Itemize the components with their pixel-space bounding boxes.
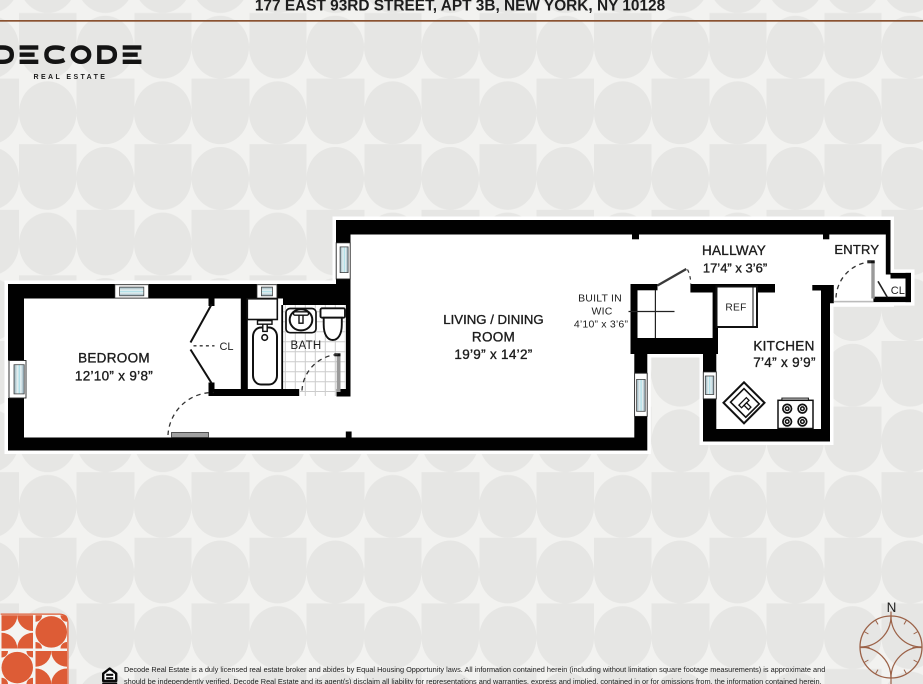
svg-text:CL: CL <box>891 285 905 297</box>
svg-text:HALLWAY: HALLWAY <box>702 243 766 258</box>
svg-text:177 EAST 93RD STREET, APT 3B,: 177 EAST 93RD STREET, APT 3B, NEW YORK, … <box>255 0 666 15</box>
svg-text:ENTRY: ENTRY <box>834 242 879 257</box>
svg-text:WIC: WIC <box>591 306 612 318</box>
svg-text:LIVING / DINING: LIVING / DINING <box>443 312 543 327</box>
svg-text:BEDROOM: BEDROOM <box>78 351 150 366</box>
svg-text:7’4” x 9’9”: 7’4” x 9’9” <box>753 355 816 370</box>
svg-text:Decode Real Estate is a duly l: Decode Real Estate is a duly licensed re… <box>124 665 825 674</box>
svg-text:N: N <box>887 600 897 615</box>
svg-text:CL: CL <box>219 341 233 353</box>
svg-text:REAL ESTATE: REAL ESTATE <box>34 74 108 81</box>
svg-text:should be independently verifi: should be independently verified. Decode… <box>124 677 822 684</box>
svg-text:12’10” x 9’8”: 12’10” x 9’8” <box>75 369 153 384</box>
svg-text:BATH: BATH <box>290 340 321 352</box>
svg-text:19’9” x 14’2”: 19’9” x 14’2” <box>454 347 532 362</box>
svg-text:4’10” x 3’6”: 4’10” x 3’6” <box>574 319 629 331</box>
svg-text:KITCHEN: KITCHEN <box>753 339 814 354</box>
svg-text:BUILT IN: BUILT IN <box>578 293 622 305</box>
svg-text:17’4” x 3’6”: 17’4” x 3’6” <box>703 261 767 276</box>
svg-text:REF: REF <box>725 302 746 313</box>
svg-text:ROOM: ROOM <box>472 330 515 345</box>
